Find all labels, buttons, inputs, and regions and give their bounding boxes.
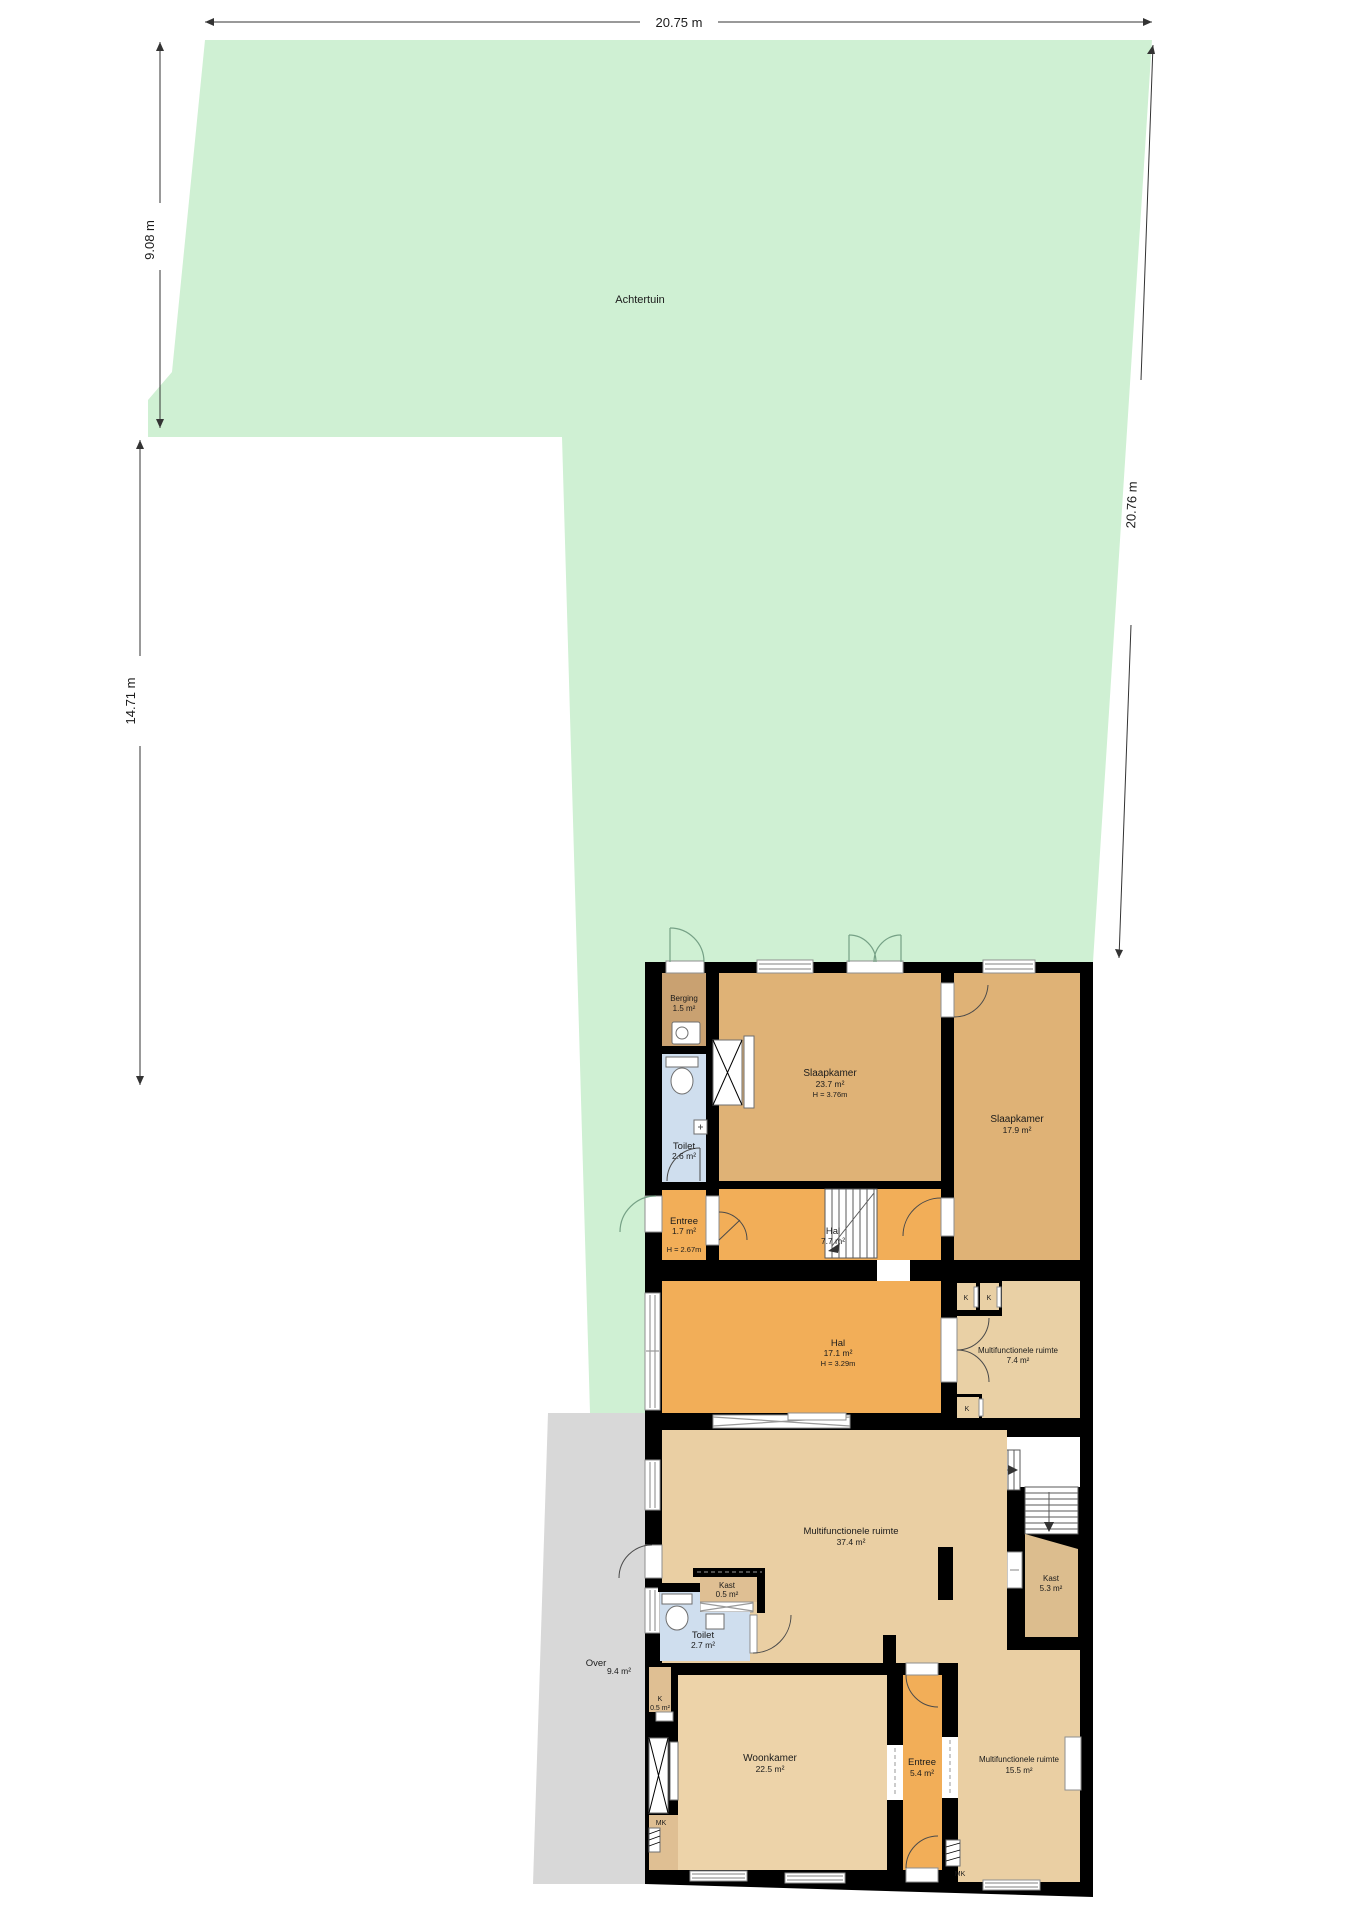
dimension-left-lower: 14.71 m	[123, 440, 144, 1085]
label-kast-klein: Kast	[719, 1581, 736, 1590]
over-label: Over	[586, 1658, 607, 1669]
slaapkamer-window	[757, 960, 813, 973]
sliding-door	[713, 1413, 850, 1428]
garden-label: Achtertuin	[615, 294, 665, 306]
dimension-left-upper-label: 9.08 m	[142, 220, 157, 260]
woonkamer-entree-opening	[887, 1745, 903, 1800]
label-berging-area: 1.5 m²	[673, 1004, 696, 1013]
wall-unit-icon	[694, 1120, 707, 1134]
label-kast-klein-area: 0.5 m²	[716, 1590, 739, 1599]
label-mfr-groot-area: 37.4 m²	[837, 1537, 866, 1547]
label-slaapkamer-groot-area: 23.7 m²	[816, 1079, 845, 1089]
label-entree-beneden: Entree	[908, 1757, 936, 1768]
label-slaapkamer-klein-area: 17.9 m²	[1003, 1125, 1032, 1135]
building: K K K	[619, 928, 1093, 1897]
wall-stub-1	[938, 1547, 953, 1600]
label-mfr-klein-area: 7.4 m²	[1007, 1356, 1030, 1365]
closet-k2-label: K	[987, 1295, 992, 1302]
label-slaapkamer-groot-h: H = 3.76m	[813, 1090, 848, 1099]
stairs-flight-down-icon	[1025, 1487, 1078, 1534]
label-slaapkamer-klein: Slaapkamer	[990, 1114, 1044, 1125]
duct-shaft-icon	[713, 1036, 754, 1108]
label-k-kast: K	[658, 1696, 663, 1703]
meter-box-2-icon	[946, 1840, 960, 1866]
label-woonkamer-area: 22.5 m²	[756, 1764, 785, 1774]
label-slaapkamer-groot: Slaapkamer	[803, 1068, 857, 1079]
label-entree-boven-h: H = 2.67m	[667, 1245, 702, 1254]
mfr-window-2	[645, 1588, 660, 1633]
stairwell-opening	[877, 1260, 910, 1281]
label-mfr-klein: Multifunctionele ruimte	[978, 1346, 1059, 1355]
label-kast-groot-area: 5.3 m²	[1040, 1584, 1063, 1593]
label-toilet-boven-area: 2.6 m²	[672, 1151, 696, 1161]
label-kast-groot: Kast	[1043, 1574, 1060, 1583]
room-hal-midden	[662, 1281, 941, 1413]
mfr-voor-niche	[1065, 1737, 1081, 1790]
mk-label: MK	[656, 1820, 667, 1827]
woonkamer-window-1	[690, 1871, 747, 1881]
toilet-block-wall	[658, 1583, 700, 1592]
dimension-left-upper: 9.08 m	[142, 42, 164, 428]
label-hal-midden-area: 17.1 m²	[824, 1348, 853, 1358]
label-toilet-beneden-area: 2.7 m²	[691, 1640, 715, 1650]
mk2-label: MK	[955, 1871, 966, 1878]
meter-box-icon	[649, 1828, 660, 1852]
floorplan-page: Achtertuin Over 9.4 m² 20.75 m 9.08 m 14…	[0, 0, 1358, 1920]
hal-glass-facade	[645, 1293, 660, 1410]
dimension-top-label: 20.75 m	[656, 15, 703, 30]
woonkamer-window-2	[785, 1873, 845, 1883]
label-mfr-voor: Multifunctionele ruimte	[979, 1755, 1060, 1764]
label-hal-boven-area: 7.7 m²	[821, 1236, 845, 1246]
label-mfr-groot: Multifunctionele ruimte	[803, 1526, 898, 1537]
dimension-top: 20.75 m	[205, 15, 1152, 30]
over-area: Over 9.4 m²	[533, 1413, 645, 1884]
label-entree-beneden-area: 5.4 m²	[910, 1768, 934, 1778]
label-woonkamer: Woonkamer	[743, 1753, 797, 1764]
label-entree-boven-area: 1.7 m²	[672, 1226, 696, 1236]
entree-mfr-opening	[942, 1737, 958, 1798]
closet-k3-door	[979, 1399, 983, 1416]
over-shape	[533, 1413, 645, 1884]
label-k-kast-area: 0.5 m²	[650, 1705, 671, 1712]
boiler-icon	[672, 1022, 700, 1044]
wall-stub-2	[883, 1635, 896, 1663]
closet-k1-door	[974, 1287, 978, 1307]
mfr-voor-window	[983, 1880, 1040, 1890]
label-mfr-voor-area: 15.5 m²	[1005, 1766, 1032, 1775]
label-hal-midden-h: H = 3.29m	[821, 1359, 856, 1368]
closet-k3-label: K	[965, 1406, 970, 1413]
dimension-right-label: 20.76 m	[1123, 481, 1140, 528]
label-berging: Berging	[670, 994, 698, 1003]
closet-k1-label: K	[964, 1295, 969, 1302]
mfr-window-1	[645, 1460, 660, 1510]
kast-block-wall-right	[757, 1577, 765, 1613]
closet-k2-door	[997, 1287, 1001, 1307]
over-area-value: 9.4 m²	[607, 1666, 631, 1676]
stairs-up-icon	[825, 1189, 877, 1258]
kast-sliding-door	[700, 1602, 753, 1612]
floorplan-canvas: Achtertuin Over 9.4 m² 20.75 m 9.08 m 14…	[0, 0, 1358, 1920]
slaapkamer2-window	[983, 960, 1035, 973]
closet-k-woonkamer-door	[656, 1712, 673, 1721]
dimension-left-lower-label: 14.71 m	[123, 678, 138, 725]
